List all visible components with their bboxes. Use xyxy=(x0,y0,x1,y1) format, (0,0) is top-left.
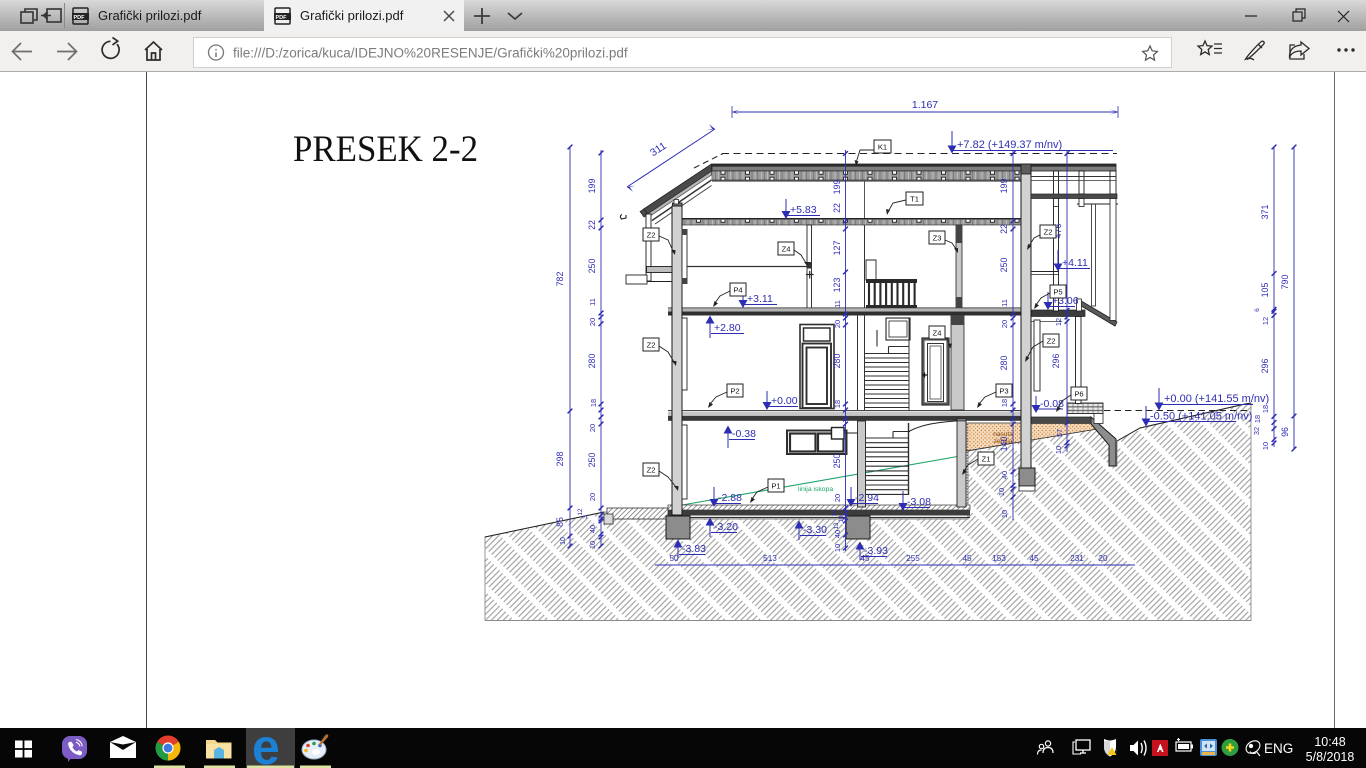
svg-text:Z4: Z4 xyxy=(782,245,791,254)
svg-text:296: 296 xyxy=(1260,359,1270,374)
svg-text:+5.83: +5.83 xyxy=(790,204,817,216)
svg-text:10: 10 xyxy=(833,544,842,552)
svg-text:12: 12 xyxy=(831,509,838,516)
svg-text:22: 22 xyxy=(999,224,1009,234)
svg-text:280: 280 xyxy=(999,356,1009,371)
svg-text:+0.00: +0.00 xyxy=(771,395,798,407)
svg-text:12: 12 xyxy=(1261,317,1270,325)
svg-text:-3.30: -3.30 xyxy=(803,524,827,536)
svg-text:57: 57 xyxy=(1055,429,1064,437)
svg-text:+4.11: +4.11 xyxy=(1062,257,1088,269)
svg-text:PDF: PDF xyxy=(276,15,288,21)
svg-text:782: 782 xyxy=(555,272,565,287)
svg-text:10: 10 xyxy=(1000,510,1009,518)
svg-text:45: 45 xyxy=(1029,554,1039,563)
svg-text:Z4: Z4 xyxy=(933,329,942,338)
svg-text:20: 20 xyxy=(588,424,597,432)
svg-text:+0.00 (+141.55 m/nv): +0.00 (+141.55 m/nv) xyxy=(1164,393,1269,405)
svg-text:371: 371 xyxy=(1260,205,1270,220)
svg-text:+2.80: +2.80 xyxy=(714,322,741,334)
svg-text:P1: P1 xyxy=(771,482,780,491)
svg-text:10: 10 xyxy=(838,515,845,522)
svg-text:250: 250 xyxy=(587,453,597,468)
svg-text:10: 10 xyxy=(1054,446,1063,454)
svg-text:250: 250 xyxy=(587,259,597,274)
svg-text:11: 11 xyxy=(833,300,842,308)
svg-text:199: 199 xyxy=(587,179,597,194)
svg-text:10: 10 xyxy=(1261,442,1270,450)
svg-text:1.167: 1.167 xyxy=(912,99,938,111)
svg-text:-3.08: -3.08 xyxy=(907,496,931,508)
svg-text:12: 12 xyxy=(577,508,584,515)
svg-text:40: 40 xyxy=(588,525,597,533)
svg-text:-2.88: -2.88 xyxy=(718,492,742,504)
svg-text:11: 11 xyxy=(1000,299,1009,307)
svg-text:45: 45 xyxy=(962,554,972,563)
svg-text:199: 199 xyxy=(832,180,842,195)
svg-text:Z3: Z3 xyxy=(933,234,942,243)
svg-text:Z2: Z2 xyxy=(647,466,656,475)
svg-text:-3.83: -3.83 xyxy=(682,543,706,555)
svg-text:P2: P2 xyxy=(730,387,739,396)
svg-text:96: 96 xyxy=(1280,427,1290,437)
svg-text:40: 40 xyxy=(1000,471,1009,479)
svg-text:18: 18 xyxy=(1261,405,1270,413)
svg-text:127: 127 xyxy=(832,241,842,256)
svg-text:20: 20 xyxy=(1098,554,1108,563)
svg-text:K1: K1 xyxy=(878,143,887,152)
svg-text:P5: P5 xyxy=(1053,288,1062,297)
svg-text:250: 250 xyxy=(999,258,1009,273)
svg-text:20: 20 xyxy=(1000,320,1009,328)
svg-text:20: 20 xyxy=(588,318,597,326)
svg-text:20: 20 xyxy=(833,320,842,328)
svg-text:123: 123 xyxy=(832,278,842,293)
svg-text:10:48: 10:48 xyxy=(1314,735,1345,749)
svg-text:file:///D:/zorica/kuca/IDEJNO%: file:///D:/zorica/kuca/IDEJNO%20RESENJE/… xyxy=(233,46,628,61)
svg-text:5/8/2018: 5/8/2018 xyxy=(1306,750,1355,764)
svg-text:18: 18 xyxy=(1253,415,1262,423)
svg-text:85: 85 xyxy=(555,517,565,527)
svg-text:3: 3 xyxy=(582,515,589,519)
svg-text:P4: P4 xyxy=(733,286,742,295)
svg-text:13: 13 xyxy=(833,522,840,529)
svg-text:199: 199 xyxy=(999,179,1009,194)
svg-text:32: 32 xyxy=(1252,427,1261,435)
svg-text:11: 11 xyxy=(588,298,597,306)
svg-text:280: 280 xyxy=(587,354,597,369)
svg-text:231: 231 xyxy=(1070,554,1084,563)
svg-text:790: 790 xyxy=(1280,275,1290,290)
svg-text:513: 513 xyxy=(763,554,777,563)
svg-text:PRESEK 2-2: PRESEK 2-2 xyxy=(293,129,478,170)
svg-text:ENG: ENG xyxy=(1264,741,1293,756)
svg-text:250: 250 xyxy=(832,454,842,469)
svg-text:40: 40 xyxy=(833,530,842,538)
svg-text:140: 140 xyxy=(999,437,1009,452)
svg-text:T1: T1 xyxy=(910,195,919,204)
svg-text:Z2: Z2 xyxy=(1047,337,1056,346)
svg-text:18: 18 xyxy=(1000,399,1009,407)
svg-text:296: 296 xyxy=(1051,354,1061,369)
svg-text:22: 22 xyxy=(832,203,842,213)
svg-text:-2.94: -2.94 xyxy=(855,492,879,504)
svg-text:18: 18 xyxy=(833,400,842,408)
svg-text:6: 6 xyxy=(1254,308,1261,312)
svg-text:10: 10 xyxy=(997,488,1006,496)
svg-text:298: 298 xyxy=(555,452,565,467)
svg-text:+3.11: +3.11 xyxy=(747,293,773,305)
svg-text:Grafički prilozi.pdf: Grafički prilozi.pdf xyxy=(300,8,404,23)
svg-text:Z2: Z2 xyxy=(647,231,656,240)
svg-text:22: 22 xyxy=(587,220,597,230)
svg-text:311: 311 xyxy=(648,140,669,159)
svg-text:-0.38: -0.38 xyxy=(732,428,756,440)
svg-text:20: 20 xyxy=(833,494,842,502)
svg-text:105: 105 xyxy=(1260,283,1270,298)
svg-text:255: 255 xyxy=(906,554,920,563)
svg-text:-0.50 (+141.05 m/nv): -0.50 (+141.05 m/nv) xyxy=(1150,411,1252,423)
svg-text:12: 12 xyxy=(1054,318,1063,326)
svg-text:Z2: Z2 xyxy=(647,341,656,350)
svg-text:20: 20 xyxy=(588,493,597,501)
svg-text:Grafički prilozi.pdf: Grafički prilozi.pdf xyxy=(98,8,202,23)
svg-text:linija iskopa: linija iskopa xyxy=(798,486,833,493)
svg-text:Z1: Z1 xyxy=(982,455,991,464)
svg-text:10: 10 xyxy=(560,537,567,545)
svg-text:280: 280 xyxy=(832,354,842,369)
svg-text:P3: P3 xyxy=(999,387,1008,396)
svg-text:P6: P6 xyxy=(1074,390,1083,399)
svg-text:10: 10 xyxy=(588,541,597,549)
svg-text:18: 18 xyxy=(589,399,598,407)
svg-text:PDF: PDF xyxy=(74,15,86,21)
svg-text:-3.20: -3.20 xyxy=(714,521,738,533)
svg-text:153: 153 xyxy=(992,554,1006,563)
svg-text:+7.82 (+149.37 m/nv): +7.82 (+149.37 m/nv) xyxy=(957,139,1062,151)
svg-text:Z2: Z2 xyxy=(1044,228,1053,237)
svg-text:-3.93: -3.93 xyxy=(864,545,888,557)
svg-text:e: e xyxy=(252,728,280,768)
